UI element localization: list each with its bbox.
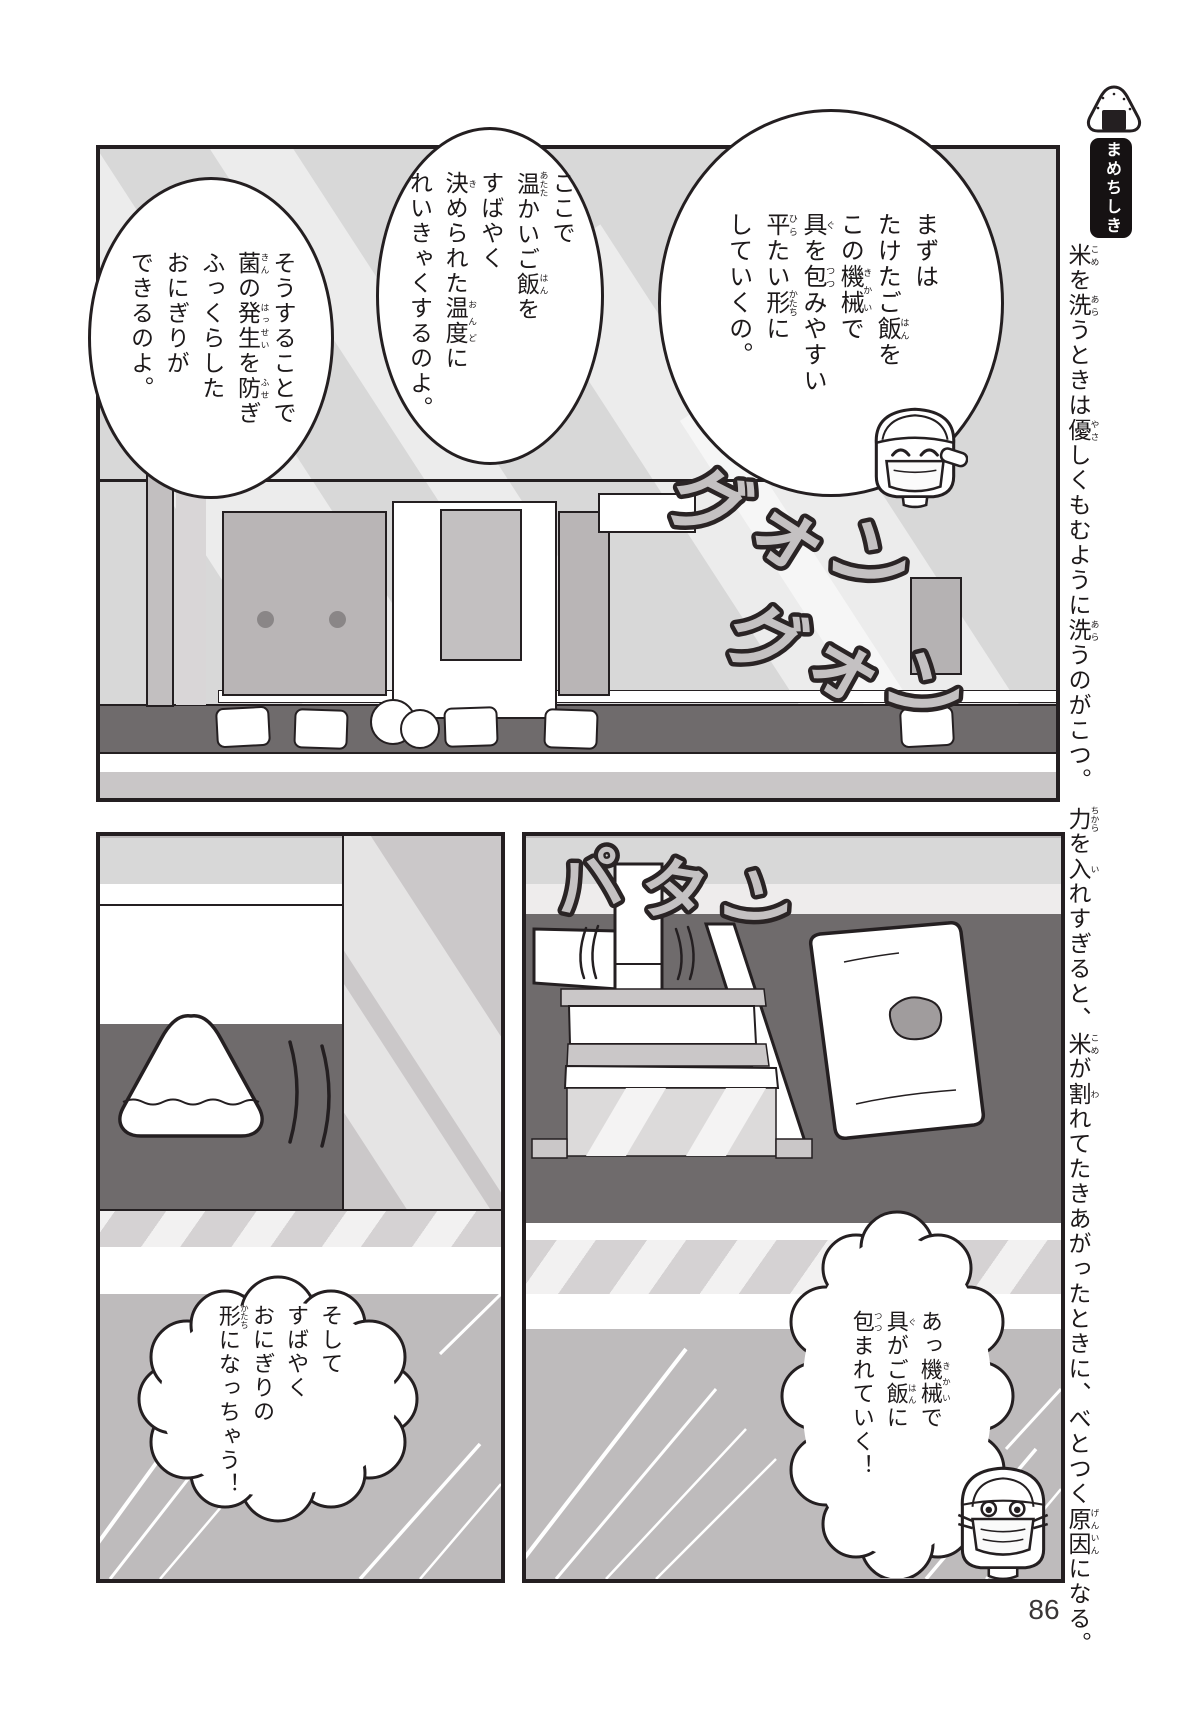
machine-box: [222, 511, 387, 696]
rice-patty: [543, 708, 598, 750]
rice-patty: [443, 706, 498, 748]
onigiri-shape: [106, 1006, 276, 1154]
striped-band: [100, 1209, 501, 1249]
panel-press: パタン あっ機械きかいで具ぐがご飯はんに包つつまれていく！: [522, 832, 1065, 1583]
panel-onigiri-closeup: そしてすばやくおにぎりの形かたちになっちゃう！: [96, 832, 505, 1583]
thought-bubble-onigiri: そしてすばやくおにぎりの形かたちになっちゃう！: [128, 1272, 430, 1529]
machine-side-box: [558, 511, 610, 696]
speech-bubble-second: ここで温あたたかいご飯はんをすばやく決きめられた温度おんどにれいきゃくするのよ。: [376, 127, 604, 465]
sfx-patan-text: パタン: [548, 836, 817, 941]
glass-column: [342, 836, 501, 1209]
sfx-guon-2: グォン: [690, 597, 990, 777]
trivia-note: 米こめを洗あらうときは優やさしくもむように洗あらうのがこつ。 力ちからを入いれす…: [1066, 243, 1100, 1713]
panel-factory: グォン グォン まずはたけたご飯はんをこの機械きかいで具ぐを包つつみやすい平ひら…: [96, 145, 1060, 802]
speech-bubble-second-text: ここで温あたたかいご飯はんをすばやく決きめられた温度おんどにれいきゃくするのよ。: [401, 171, 579, 421]
sfx-guon-2-text: グォン: [706, 597, 990, 757]
machine-white-strip: [100, 884, 342, 906]
bolt-icon: [329, 611, 346, 628]
thought-bubble-press-text: あっ機械きかいで具ぐがご飯はんに包つつまれていく！: [845, 1310, 952, 1478]
rice-sheet: [796, 914, 1011, 1149]
motion-lines-icon: [276, 1036, 340, 1176]
speech-bubble-third-text: そうすることで菌きんの発生はっせいを防ふせぎふっくらしたおにぎりができるのよ。: [122, 251, 300, 426]
machine-top-band: [100, 838, 342, 884]
speech-bubble-first-text: まずはたけたご飯はんをこの機械きかいで具ぐを包つつみやすい平ひらたい形かたちにし…: [719, 212, 942, 394]
manga-page: まめちしき 米こめを洗あらうときは優やさしくもむように洗あらうのがこつ。 力ちか…: [0, 0, 1182, 1733]
speech-bubble-third: そうすることで菌きんの発生はっせいを防ふせぎふっくらしたおにぎりができるのよ。: [88, 177, 334, 499]
machine-chute: [392, 501, 557, 719]
rice-patty: [293, 708, 348, 750]
trivia-badge: まめちしき: [1090, 138, 1132, 238]
rice-patty: [215, 706, 271, 749]
thought-bubble-onigiri-text: そしてすばやくおにぎりの形かたちになっちゃう！: [211, 1304, 347, 1497]
onigiri-icon: [1086, 84, 1142, 134]
chute-inner-panel: [440, 509, 522, 661]
worker-face-smiling-icon: [862, 397, 968, 511]
sfx-patan: パタン: [548, 836, 838, 941]
bolt-icon: [257, 611, 274, 628]
rice-ball: [400, 709, 440, 749]
trivia-badge-label: まめちしき: [1103, 141, 1119, 236]
worker-face-icon: [950, 1456, 1056, 1584]
page-number: 86: [1018, 1594, 1070, 1626]
